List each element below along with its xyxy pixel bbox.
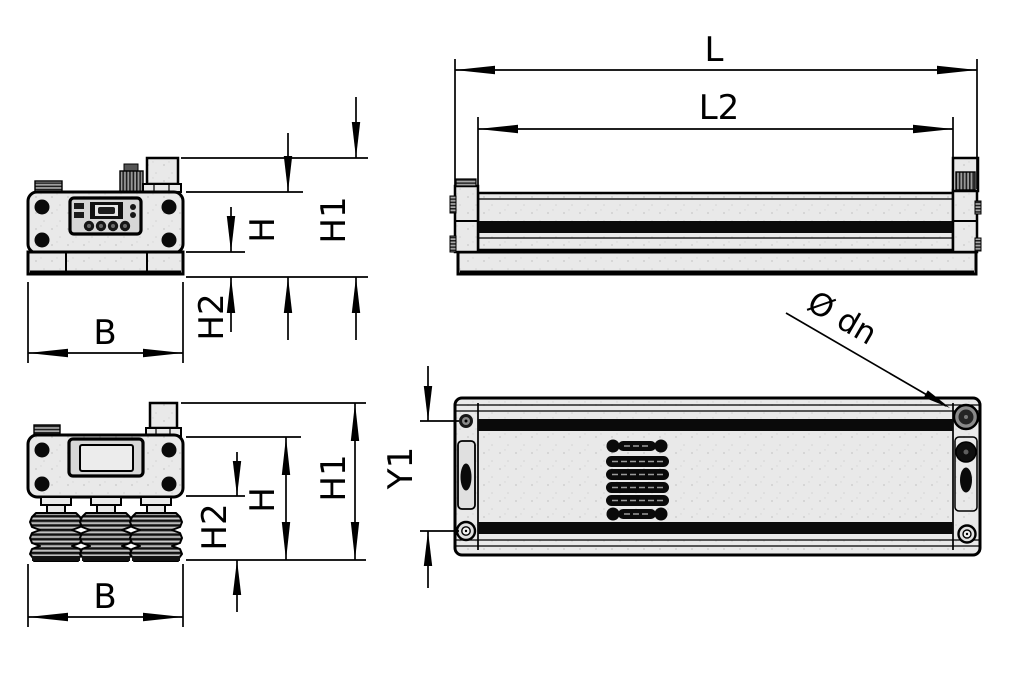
slot-opening — [461, 464, 472, 491]
dim-label-H: H — [243, 217, 283, 243]
connector-block — [150, 403, 177, 428]
arrowhead — [937, 66, 977, 74]
dimension-H1-front: H1 — [314, 97, 360, 340]
connector-block — [147, 158, 178, 184]
port-center — [964, 450, 969, 455]
suction-cup — [130, 513, 182, 561]
display-window — [80, 445, 133, 471]
dimension-dn-callout: Ø dn — [786, 284, 950, 408]
suction-cup — [80, 513, 132, 561]
arrowhead — [143, 349, 183, 357]
cap-screw-side — [450, 196, 456, 213]
view-front-end: B H2 H H1 — [28, 97, 368, 363]
suction-cup — [30, 513, 82, 561]
arrowhead — [424, 386, 432, 421]
arrowhead — [143, 613, 183, 621]
seal-stripe — [478, 419, 953, 431]
led-dot — [130, 212, 136, 218]
arrowhead — [284, 156, 292, 192]
dim-label-H2: H2 — [192, 293, 232, 340]
arrowhead — [455, 66, 495, 74]
display-readout — [98, 207, 115, 214]
knurled-plug — [120, 171, 143, 192]
corner-screw — [35, 443, 50, 458]
cap-screw-side — [450, 236, 456, 252]
dim-label-H1: H1 — [314, 454, 354, 501]
cup-lip — [32, 556, 80, 561]
dimension-H1-bellows: H1 — [314, 403, 359, 560]
cup-lip — [82, 556, 130, 561]
corner-screw — [162, 443, 177, 458]
arrowhead — [284, 277, 292, 313]
dimension-H-front: H — [243, 133, 292, 340]
fitting-center — [964, 415, 968, 419]
dim-label-H: H — [243, 487, 283, 513]
arrowhead — [282, 437, 290, 475]
corner-screw — [35, 233, 50, 248]
arrowhead — [233, 461, 241, 496]
arrowhead — [227, 216, 235, 252]
cap-screw-side — [975, 201, 981, 214]
arrowhead — [352, 277, 360, 313]
dimension-B-bellows: B — [28, 564, 183, 627]
led-dot — [130, 204, 136, 210]
ribbed-tab — [35, 181, 62, 192]
corner-screw — [162, 477, 177, 492]
screw-center — [465, 420, 468, 423]
view-top: Y1 Ø dn — [381, 284, 980, 588]
arrowhead — [28, 349, 68, 357]
cup-lip — [132, 556, 180, 561]
corner-screw — [35, 477, 50, 492]
arrowhead — [913, 125, 953, 133]
dimension-B-front: B — [28, 282, 183, 363]
cup-nipples — [41, 497, 171, 514]
dimension-Y1: Y1 — [381, 366, 459, 588]
ribbed-tab — [34, 425, 60, 434]
view-front-bellows: B H2 H H1 — [28, 403, 366, 627]
side-left-end-cap — [450, 179, 478, 252]
control-panel — [70, 198, 141, 234]
cap-ribbed-tab — [456, 179, 476, 186]
technical-drawing-canvas: L L2 — [0, 0, 1010, 673]
cup-nipple-flange — [141, 497, 171, 505]
dim-label-H1: H1 — [314, 196, 354, 243]
corner-screw — [35, 200, 50, 215]
screw-center — [465, 530, 467, 532]
grille-end-dot — [607, 508, 620, 521]
dim-label-L: L — [705, 30, 724, 70]
arrowhead — [282, 522, 290, 560]
arrowhead — [424, 531, 432, 566]
screw-center — [966, 533, 968, 535]
button-center — [99, 224, 103, 228]
led-indicator — [74, 203, 84, 209]
corner-screw — [162, 233, 177, 248]
dimension-drawing: L L2 — [0, 0, 1010, 673]
slot-opening — [960, 468, 972, 493]
button-center — [111, 224, 115, 228]
dim-label-B: B — [93, 577, 116, 617]
grille-end-dot — [655, 440, 668, 453]
dim-label-H2: H2 — [195, 503, 235, 550]
dimension-H2-front: H2 — [192, 207, 235, 341]
arrowhead — [351, 403, 359, 441]
arrowhead — [478, 125, 518, 133]
arrowhead — [28, 613, 68, 621]
dim-label-dn: Ø dn — [801, 284, 883, 352]
dim-label-L2: L2 — [699, 88, 740, 128]
seal-stripe — [478, 522, 953, 534]
dim-label-B: B — [93, 313, 116, 353]
dim-label-Y1: Y1 — [381, 447, 421, 490]
button-center — [123, 224, 127, 228]
knurled-fitting — [956, 172, 975, 190]
arrowhead — [352, 122, 360, 158]
dimension-H2-bellows: H2 — [195, 452, 241, 612]
cup-nipple-flange — [41, 497, 71, 505]
end-cap-body — [455, 186, 478, 252]
dimension-L2: L2 — [478, 88, 953, 192]
cup-nipple-flange — [91, 497, 121, 505]
view-side: L L2 — [450, 30, 981, 274]
arrowhead — [351, 522, 359, 560]
cap-screw-side — [975, 238, 981, 251]
bellows-suction-cups — [30, 513, 182, 561]
corner-screw — [162, 200, 177, 215]
side-seal-stripe — [478, 221, 953, 233]
button-center — [87, 224, 91, 228]
grille-end-dot — [607, 440, 620, 453]
grille-end-dot — [655, 508, 668, 521]
arrowhead — [233, 560, 241, 595]
led-indicator — [74, 212, 84, 218]
dimension-H-bellows: H — [243, 437, 290, 560]
